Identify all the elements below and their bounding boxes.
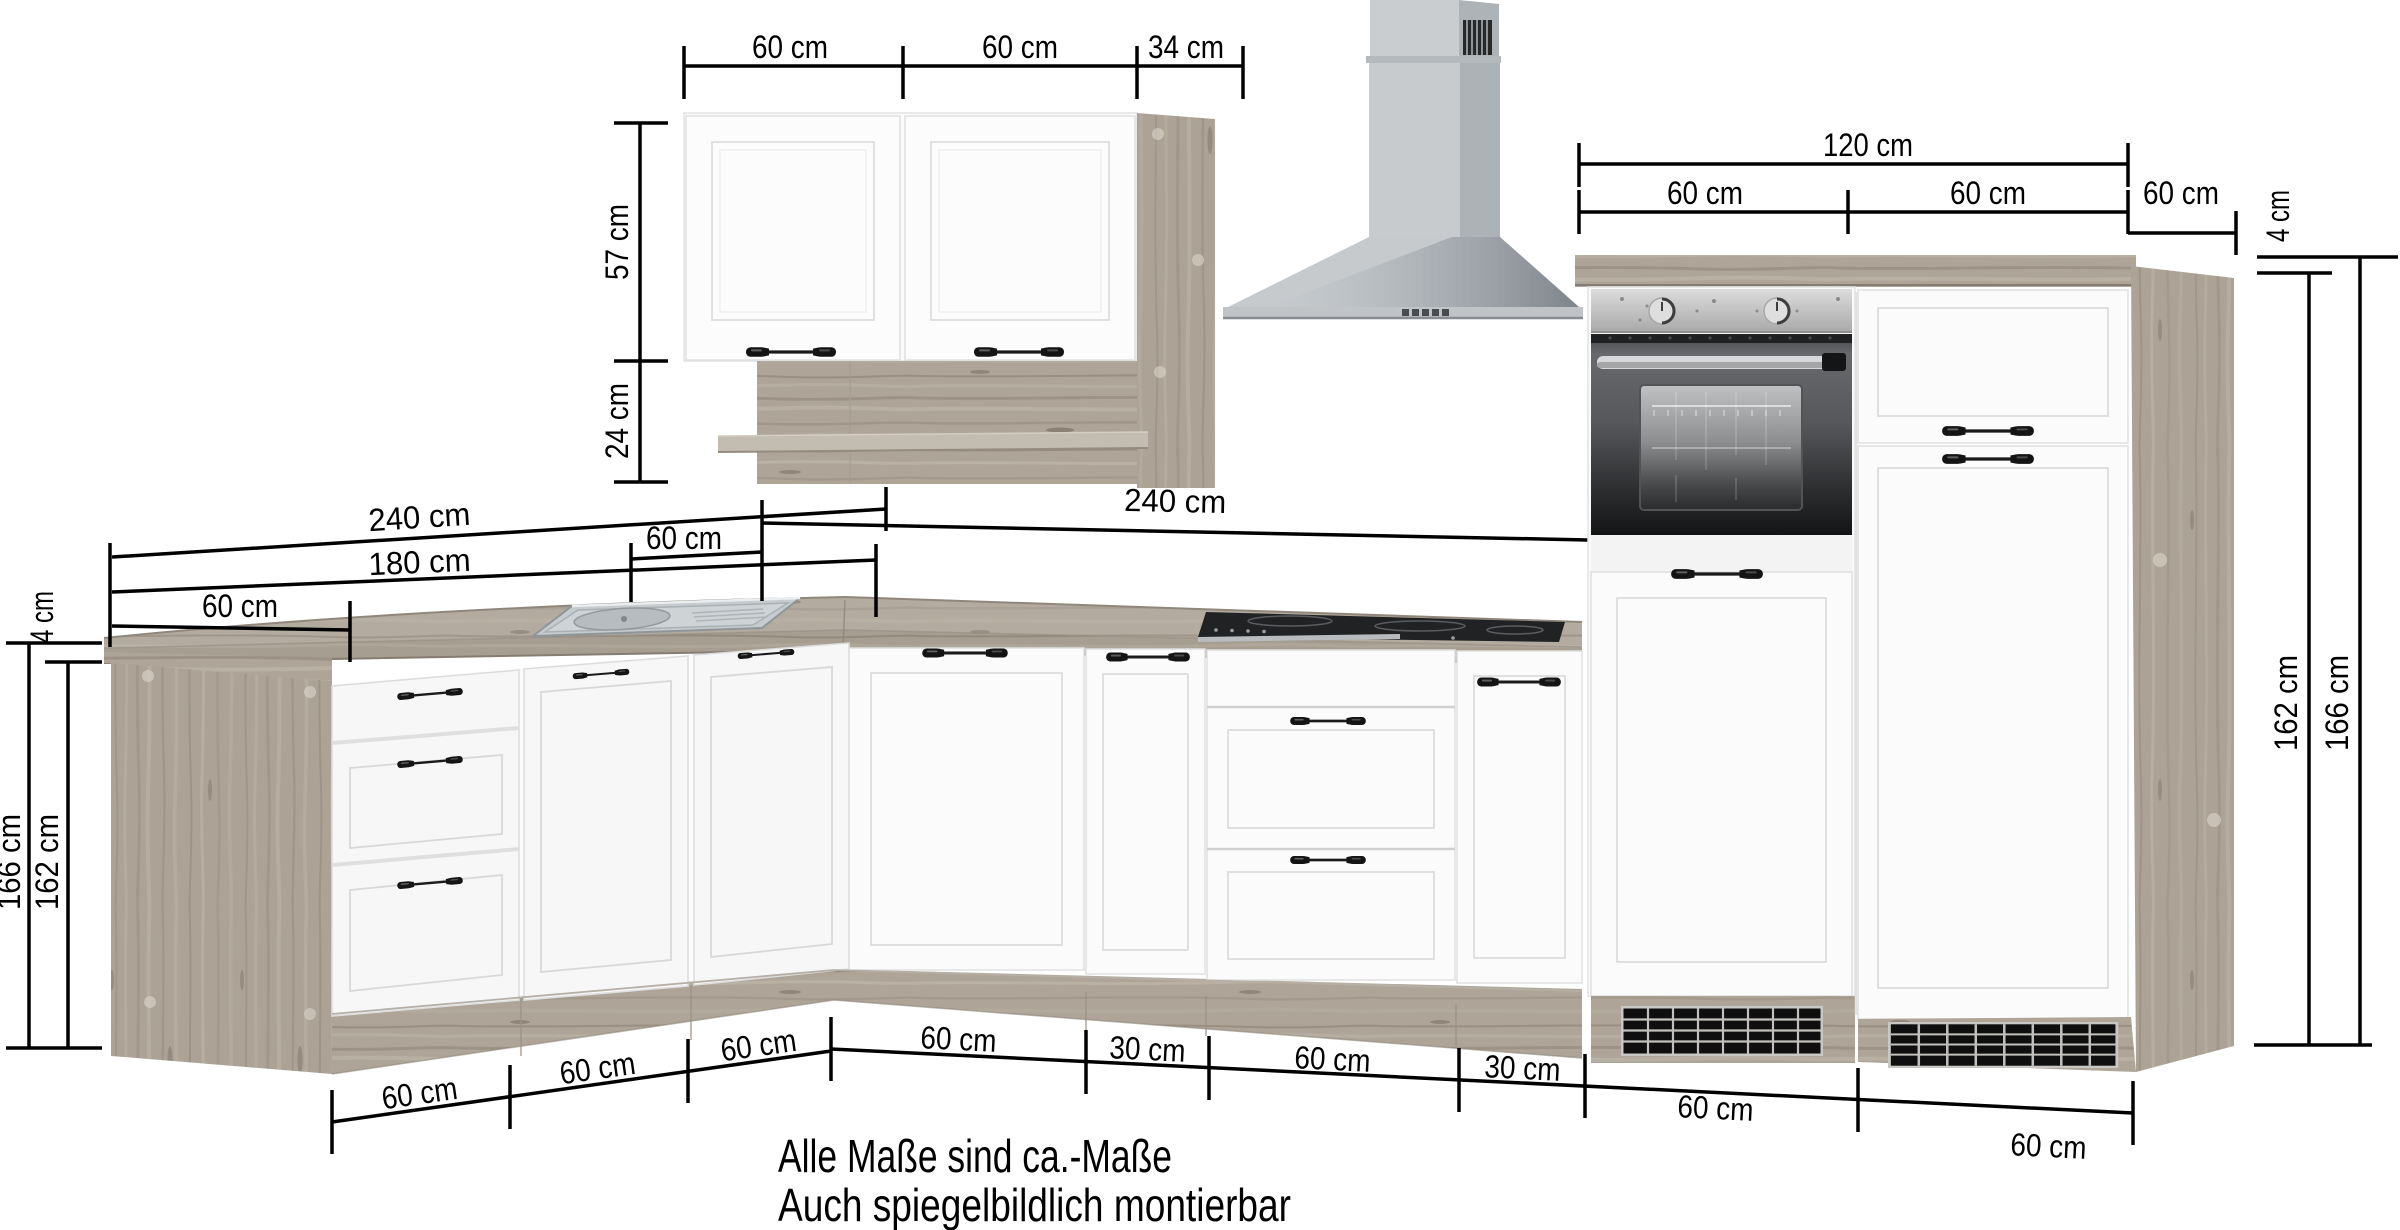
svg-text:240 cm: 240 cm: [367, 496, 471, 538]
svg-text:60 cm: 60 cm: [752, 29, 828, 65]
svg-text:166 cm: 166 cm: [0, 814, 27, 910]
svg-text:30 cm: 30 cm: [1484, 1048, 1562, 1088]
svg-text:60 cm: 60 cm: [202, 588, 278, 624]
svg-text:60 cm: 60 cm: [2010, 1126, 2088, 1166]
svg-text:Auch spiegelbildlich montierba: Auch spiegelbildlich montierbar: [778, 1179, 1291, 1230]
svg-text:60 cm: 60 cm: [2143, 175, 2219, 211]
svg-text:4 cm: 4 cm: [24, 591, 60, 643]
svg-text:60 cm: 60 cm: [982, 29, 1058, 65]
svg-text:60 cm: 60 cm: [920, 1019, 998, 1059]
svg-text:180 cm: 180 cm: [368, 542, 471, 582]
svg-text:60 cm: 60 cm: [1677, 1088, 1755, 1128]
svg-text:162 cm: 162 cm: [2268, 655, 2304, 751]
svg-text:30 cm: 30 cm: [1109, 1029, 1187, 1069]
svg-text:166 cm: 166 cm: [2319, 655, 2355, 751]
svg-text:60 cm: 60 cm: [1294, 1039, 1372, 1079]
svg-text:34 cm: 34 cm: [1148, 29, 1224, 65]
svg-text:4 cm: 4 cm: [2260, 190, 2296, 242]
svg-text:120 cm: 120 cm: [1823, 127, 1913, 163]
svg-text:24 cm: 24 cm: [599, 383, 635, 459]
svg-text:162 cm: 162 cm: [29, 814, 65, 910]
svg-text:60 cm: 60 cm: [1950, 175, 2026, 211]
svg-text:60 cm: 60 cm: [646, 520, 722, 556]
svg-text:57 cm: 57 cm: [599, 204, 635, 280]
svg-text:240 cm: 240 cm: [1124, 482, 1227, 520]
svg-text:60 cm: 60 cm: [1667, 175, 1743, 211]
svg-text:Alle Maße sind ca.-Maße: Alle Maße sind ca.-Maße: [778, 1130, 1172, 1182]
